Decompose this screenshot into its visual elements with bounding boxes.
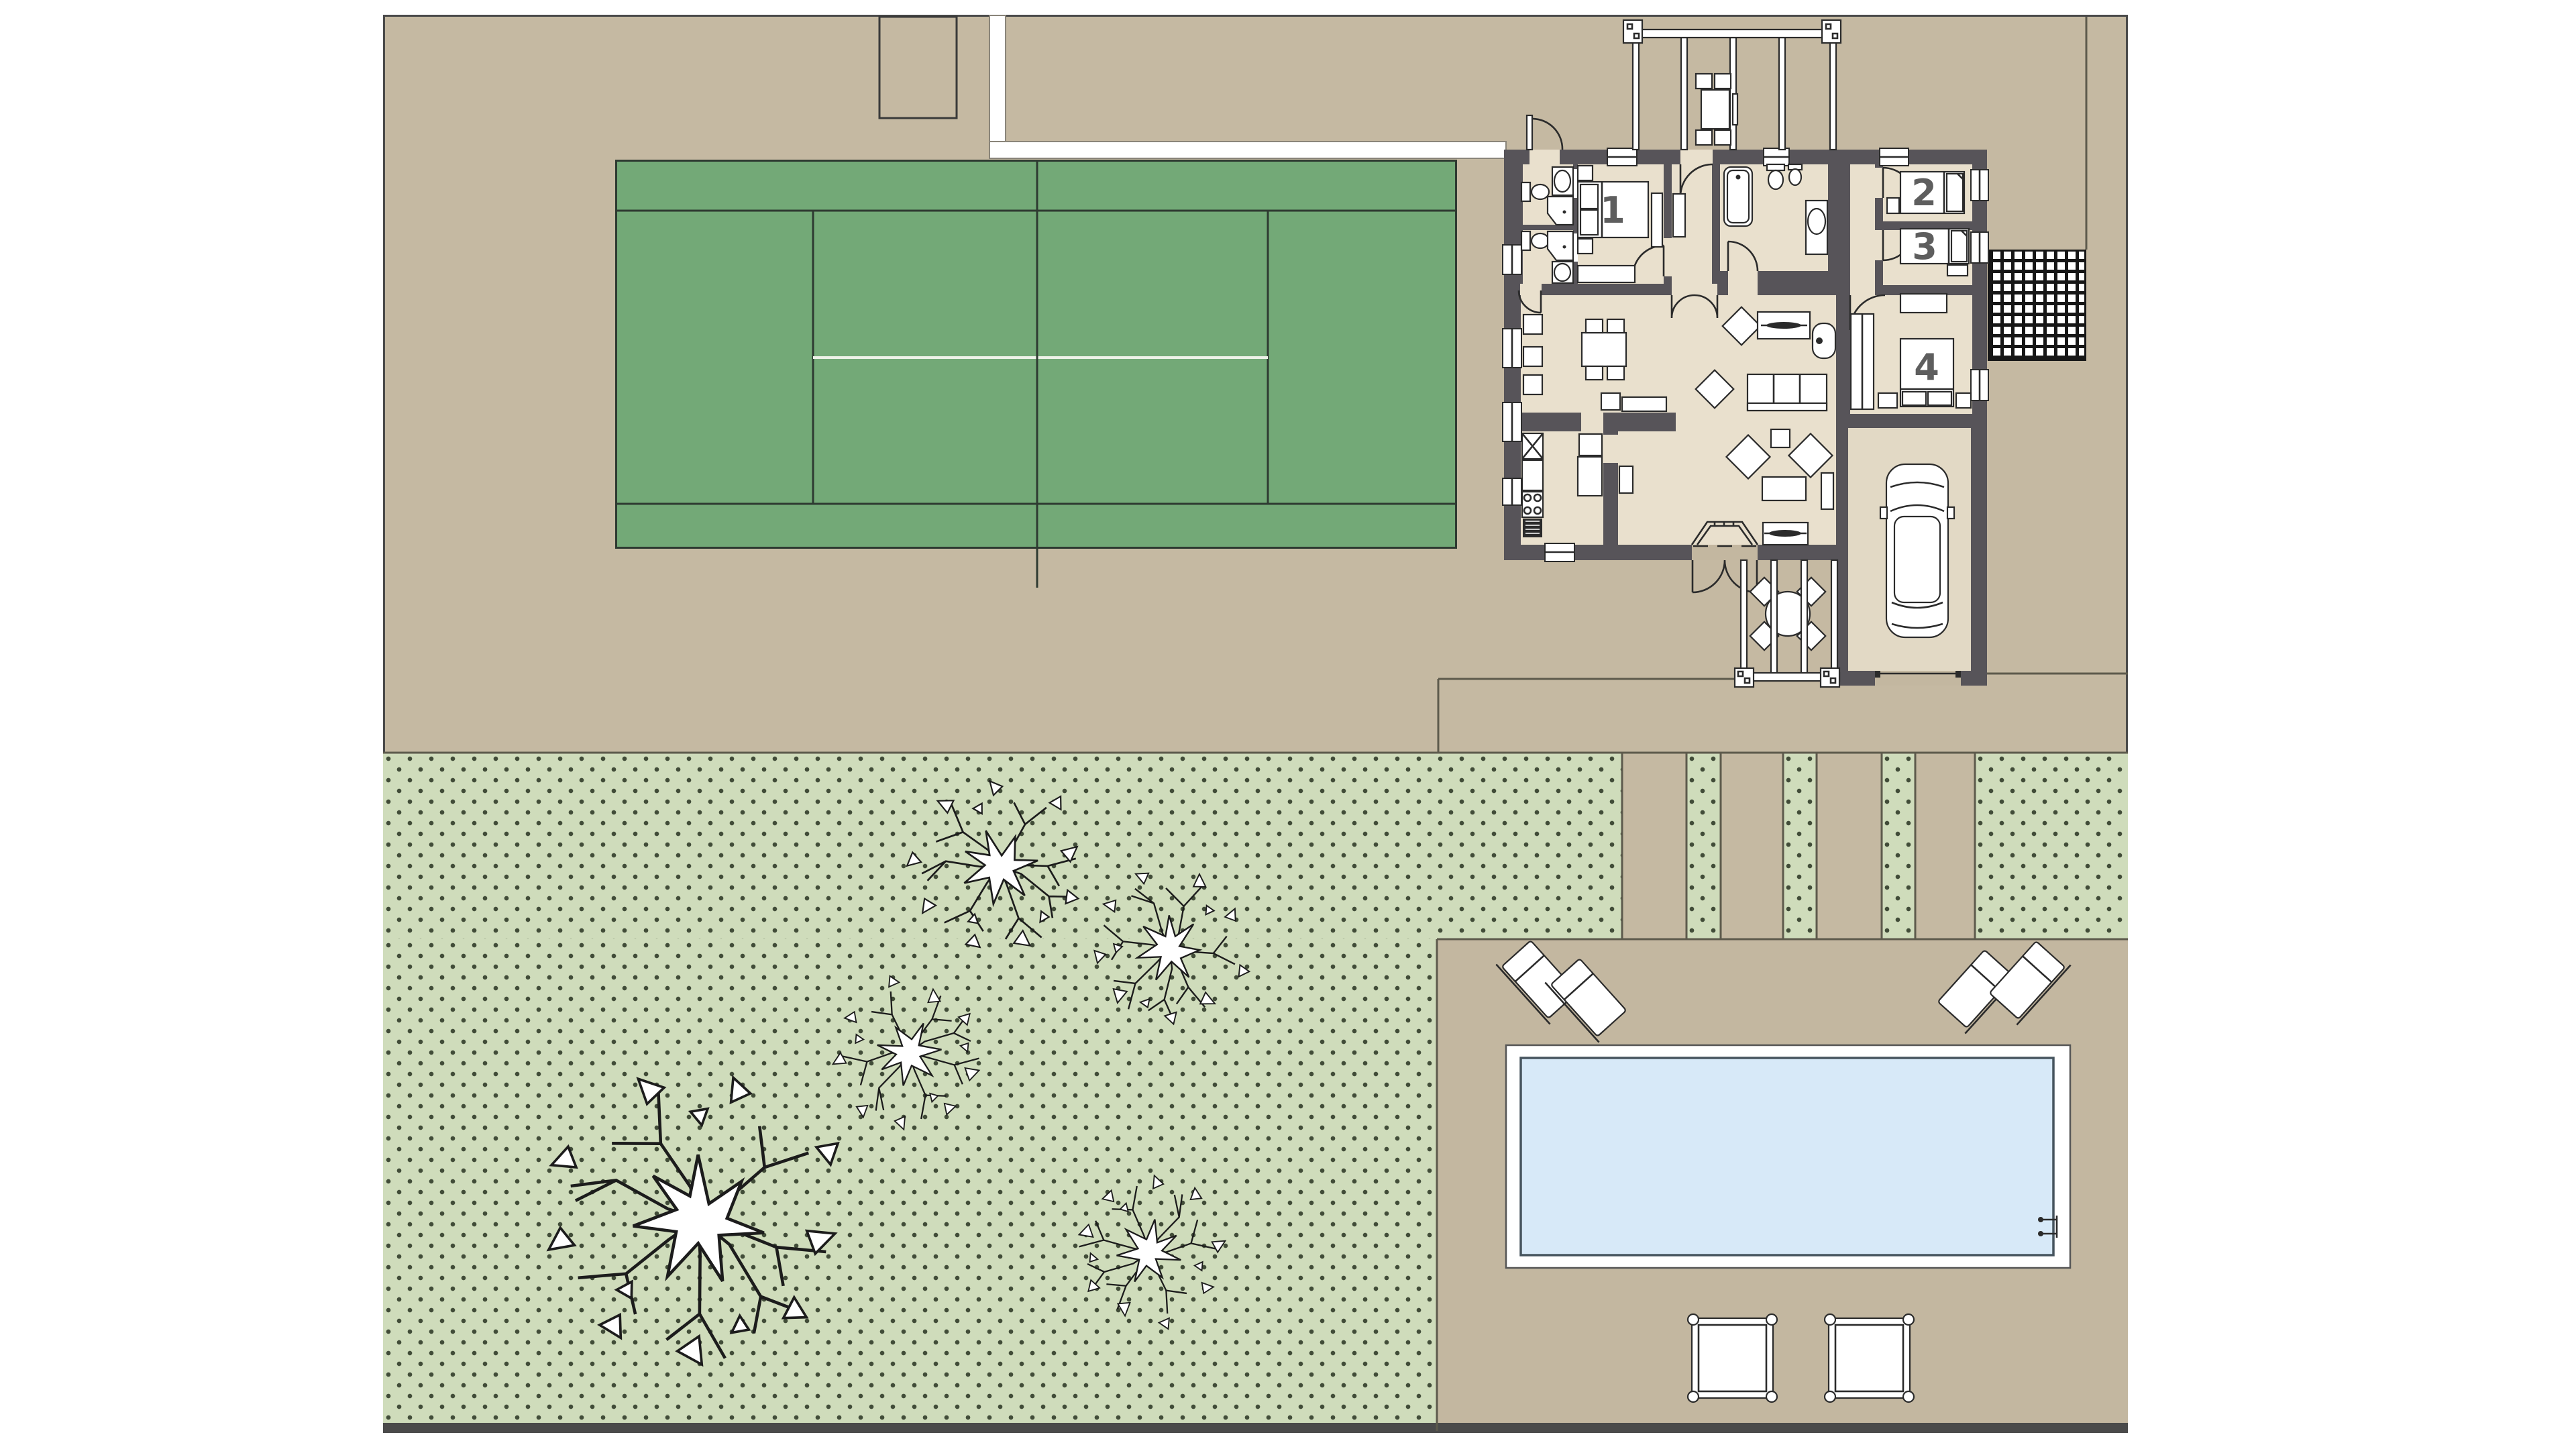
tennis-court <box>615 160 1457 549</box>
garden-strip-2 <box>1783 753 1817 939</box>
trellis-deck <box>1988 250 2086 361</box>
walkway-vertical <box>989 15 1006 159</box>
garden-strip-1 <box>1686 753 1721 939</box>
garden-lawn-main <box>383 939 1437 1431</box>
walkway-horizontal <box>989 141 1507 159</box>
garden-lawn-upper <box>383 753 1622 939</box>
pool-terrace <box>1437 939 2128 1431</box>
site-plan-canvas: 1 2 3 4 <box>0 0 2576 1445</box>
garden-strip-3 <box>1882 753 1915 939</box>
plot-south-boundary <box>383 1423 2128 1433</box>
garden-block-east <box>1975 753 2128 939</box>
